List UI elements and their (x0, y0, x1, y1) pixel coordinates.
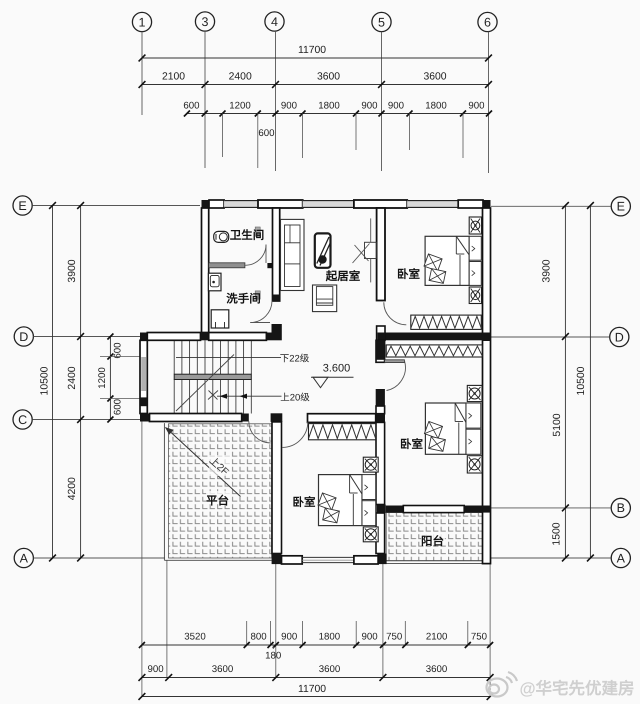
svg-text:A: A (617, 551, 626, 565)
svg-text:D: D (19, 330, 28, 344)
svg-text:600: 600 (113, 398, 124, 415)
svg-text:10500: 10500 (40, 366, 51, 395)
svg-text:2100: 2100 (426, 632, 448, 643)
svg-text:E: E (18, 199, 26, 213)
svg-text:起居室: 起居室 (325, 269, 361, 283)
svg-text:180: 180 (265, 651, 282, 662)
svg-text:A: A (20, 551, 29, 565)
svg-text:B: B (617, 501, 625, 515)
svg-text:5: 5 (378, 15, 385, 29)
svg-text:6: 6 (484, 15, 491, 29)
svg-text:900: 900 (468, 101, 485, 112)
svg-text:800: 800 (251, 632, 268, 643)
svg-text:D: D (615, 330, 624, 344)
svg-text:11700: 11700 (298, 684, 326, 695)
svg-text:10500: 10500 (576, 366, 587, 395)
svg-text:C: C (18, 413, 27, 427)
svg-text:3600: 3600 (426, 664, 448, 675)
svg-text:3.600: 3.600 (323, 363, 351, 375)
svg-text:上20级: 上20级 (280, 393, 310, 404)
svg-text:1800: 1800 (425, 101, 447, 112)
svg-text:平台: 平台 (206, 495, 229, 508)
svg-text:600: 600 (258, 128, 275, 139)
svg-text:600: 600 (113, 342, 124, 359)
svg-text:卫生间: 卫生间 (230, 229, 265, 242)
svg-text:1: 1 (139, 15, 146, 29)
svg-text:2100: 2100 (162, 72, 185, 83)
svg-text:3: 3 (202, 15, 209, 29)
svg-text:750: 750 (386, 632, 403, 643)
svg-text:E: E (617, 200, 625, 214)
svg-text:3600: 3600 (317, 72, 340, 83)
svg-text:900: 900 (281, 101, 298, 112)
svg-text:3900: 3900 (542, 259, 553, 282)
svg-text:@华宅先优建房: @华宅先优建房 (519, 679, 634, 698)
svg-text:1800: 1800 (318, 101, 340, 112)
svg-text:5100: 5100 (552, 413, 563, 436)
svg-text:2400: 2400 (229, 72, 252, 83)
svg-text:下22级: 下22级 (280, 354, 310, 365)
svg-text:900: 900 (388, 101, 405, 112)
svg-text:3900: 3900 (67, 259, 78, 282)
svg-text:4200: 4200 (67, 477, 78, 500)
svg-text:卧室: 卧室 (293, 495, 316, 509)
svg-text:卧室: 卧室 (397, 267, 420, 281)
svg-text:2400: 2400 (67, 366, 78, 389)
svg-text:4: 4 (271, 15, 278, 29)
svg-text:900: 900 (281, 632, 298, 643)
svg-text:洗手间: 洗手间 (226, 293, 261, 306)
svg-text:3600: 3600 (423, 72, 446, 83)
svg-text:阳台: 阳台 (421, 535, 444, 548)
svg-text:3600: 3600 (319, 664, 341, 675)
svg-text:1200: 1200 (97, 367, 108, 389)
svg-text:11700: 11700 (298, 45, 326, 56)
svg-text:1200: 1200 (229, 101, 251, 112)
svg-text:750: 750 (471, 632, 488, 643)
svg-text:900: 900 (362, 632, 379, 643)
svg-text:3520: 3520 (184, 632, 206, 643)
svg-text:3600: 3600 (212, 664, 234, 675)
svg-text:1500: 1500 (552, 522, 563, 545)
svg-text:900: 900 (361, 101, 378, 112)
svg-text:900: 900 (148, 664, 165, 675)
svg-text:1800: 1800 (319, 632, 341, 643)
svg-text:卧室: 卧室 (400, 437, 423, 451)
svg-text:600: 600 (183, 101, 200, 112)
